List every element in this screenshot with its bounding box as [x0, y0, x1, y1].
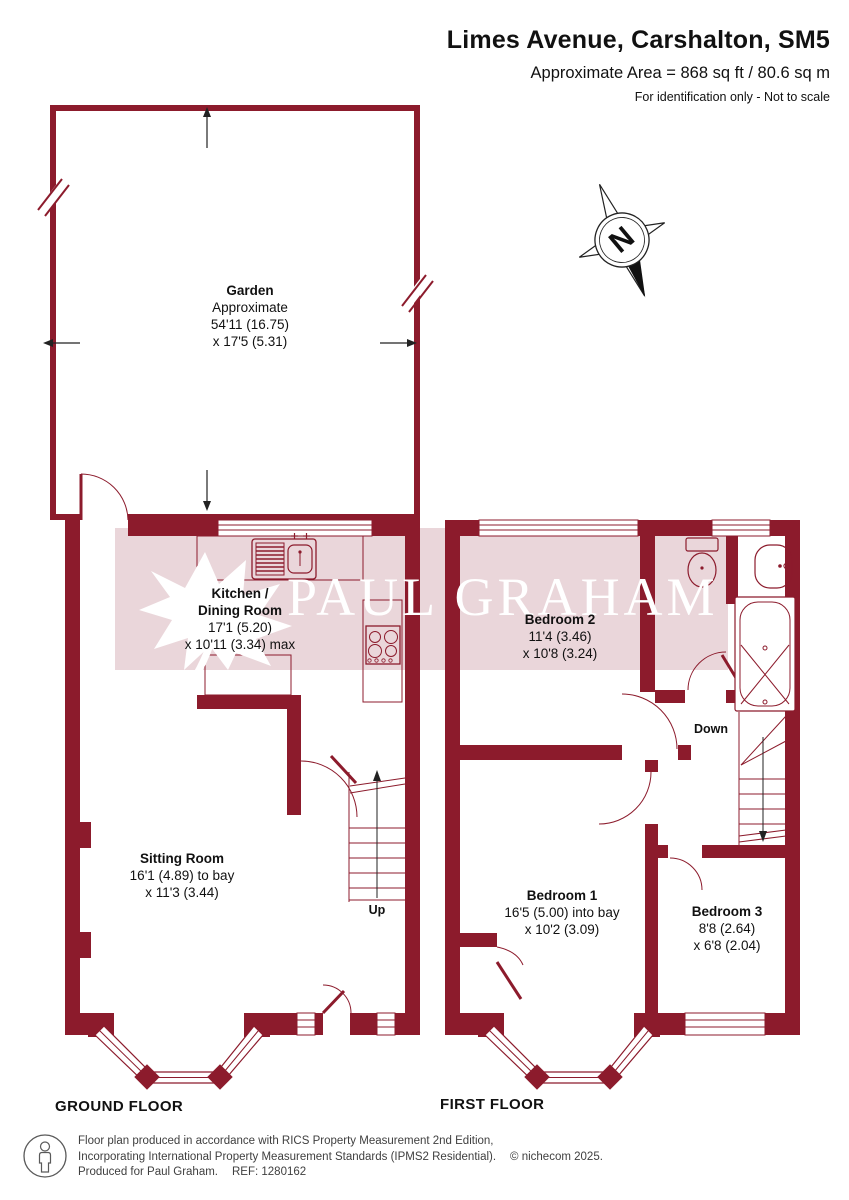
bedroom3-window: [685, 1013, 765, 1035]
floorplan-page: N: [0, 0, 849, 1200]
bathroom-window: [712, 520, 770, 536]
bedroom3-door: [670, 858, 702, 890]
footer-line1: Floor plan produced in accordance with R…: [78, 1134, 603, 1150]
disclaimer-note: For identification only - Not to scale: [635, 90, 830, 104]
footer-ref: REF: 1280162: [232, 1166, 306, 1178]
bathtub-icon: [735, 597, 795, 711]
bedroom3-name: Bedroom 3: [647, 903, 807, 920]
bay-window-ground: [95, 1026, 263, 1090]
approximate-area: Approximate Area = 868 sq ft / 80.6 sq m: [531, 64, 830, 83]
bedroom2-dims: 11'4 (3.46) x 10'8 (3.24): [460, 628, 660, 662]
first-floor-label: FIRST FLOOR: [440, 1096, 544, 1113]
bedroom2-label: Bedroom 2 11'4 (3.46) x 10'8 (3.24): [460, 611, 660, 662]
bedroom1-door: [599, 772, 651, 824]
sitting-room-label: Sitting Room 16'1 (4.89) to bay x 11'3 (…: [82, 850, 282, 901]
stairs-up-label: Up: [347, 903, 407, 917]
sitting-window-2: [377, 1013, 395, 1035]
stairs-up: [349, 772, 405, 902]
footer-copyright: © nichecom 2025.: [510, 1151, 603, 1163]
bedroom3-label: Bedroom 3 8'8 (2.64) x 6'8 (2.04): [647, 903, 807, 954]
page-title: Limes Avenue, Carshalton, SM5: [447, 26, 830, 55]
kitchen-label: Kitchen / Dining Room 17'1 (5.20) x 10'1…: [140, 585, 340, 653]
sitting-room-dims: 16'1 (4.89) to bay x 11'3 (3.44): [82, 867, 282, 901]
ground-floor-label: GROUND FLOOR: [55, 1098, 183, 1115]
footer-produced-for: Produced for Paul Graham.: [78, 1166, 218, 1178]
sitting-room-name: Sitting Room: [82, 850, 282, 867]
stairs-down: [739, 712, 786, 845]
footer-standards: Incorporating International Property Mea…: [78, 1151, 496, 1163]
footer-line2: Incorporating International Property Mea…: [78, 1150, 603, 1166]
bedroom3-dims: 8'8 (2.64) x 6'8 (2.04): [647, 920, 807, 954]
back-door: [81, 474, 128, 520]
bedroom1-cupboard-door: [497, 947, 523, 999]
kitchen-name: Kitchen / Dining Room: [140, 585, 340, 619]
bedroom1-name: Bedroom 1: [462, 887, 662, 904]
garden-dims: Approximate 54'11 (16.75) x 17'5 (5.31): [170, 299, 330, 350]
nichecom-logo: [22, 1132, 68, 1180]
sitting-window-1: [297, 1013, 315, 1035]
bay-window-first: [485, 1026, 653, 1090]
footer-line3: Produced for Paul Graham.REF: 1280162: [78, 1165, 603, 1181]
bedroom2-name: Bedroom 2: [460, 611, 660, 628]
bedroom1-label: Bedroom 1 16'5 (5.00) into bay x 10'2 (3…: [462, 887, 662, 938]
down-arrowhead: [759, 831, 767, 842]
garden-label: Garden Approximate 54'11 (16.75) x 17'5 …: [170, 282, 330, 350]
bedroom1-dims: 16'5 (5.00) into bay x 10'2 (3.09): [462, 904, 662, 938]
bedroom2-window: [479, 520, 638, 536]
up-arrowhead: [373, 770, 381, 781]
footer: Floor plan produced in accordance with R…: [78, 1134, 603, 1181]
compass-icon: N: [557, 167, 688, 315]
kitchen-dims: 17'1 (5.20) x 10'11 (3.34) max: [140, 619, 340, 653]
front-door: [323, 985, 351, 1013]
stairs-down-label: Down: [681, 722, 741, 736]
garden-name: Garden: [170, 282, 330, 299]
